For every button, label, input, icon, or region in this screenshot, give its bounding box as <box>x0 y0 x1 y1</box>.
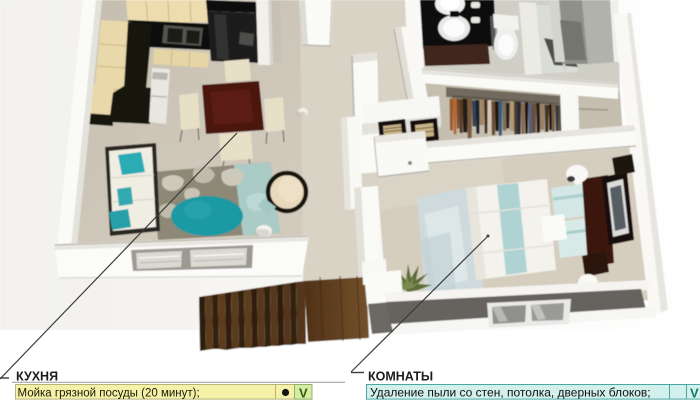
svg-text:Мойка грязной посуды (20 минут: Мойка грязной посуды (20 минут); <box>18 388 200 400</box>
svg-text:КУХНЯ: КУХНЯ <box>16 370 58 384</box>
svg-text:Удаление пыли со стен, потолка: Удаление пыли со стен, потолка, дверных … <box>370 386 651 400</box>
svg-text:КОМНАТЫ: КОМНАТЫ <box>368 370 433 384</box>
svg-text:V: V <box>299 386 308 400</box>
svg-text:V: V <box>690 386 699 400</box>
